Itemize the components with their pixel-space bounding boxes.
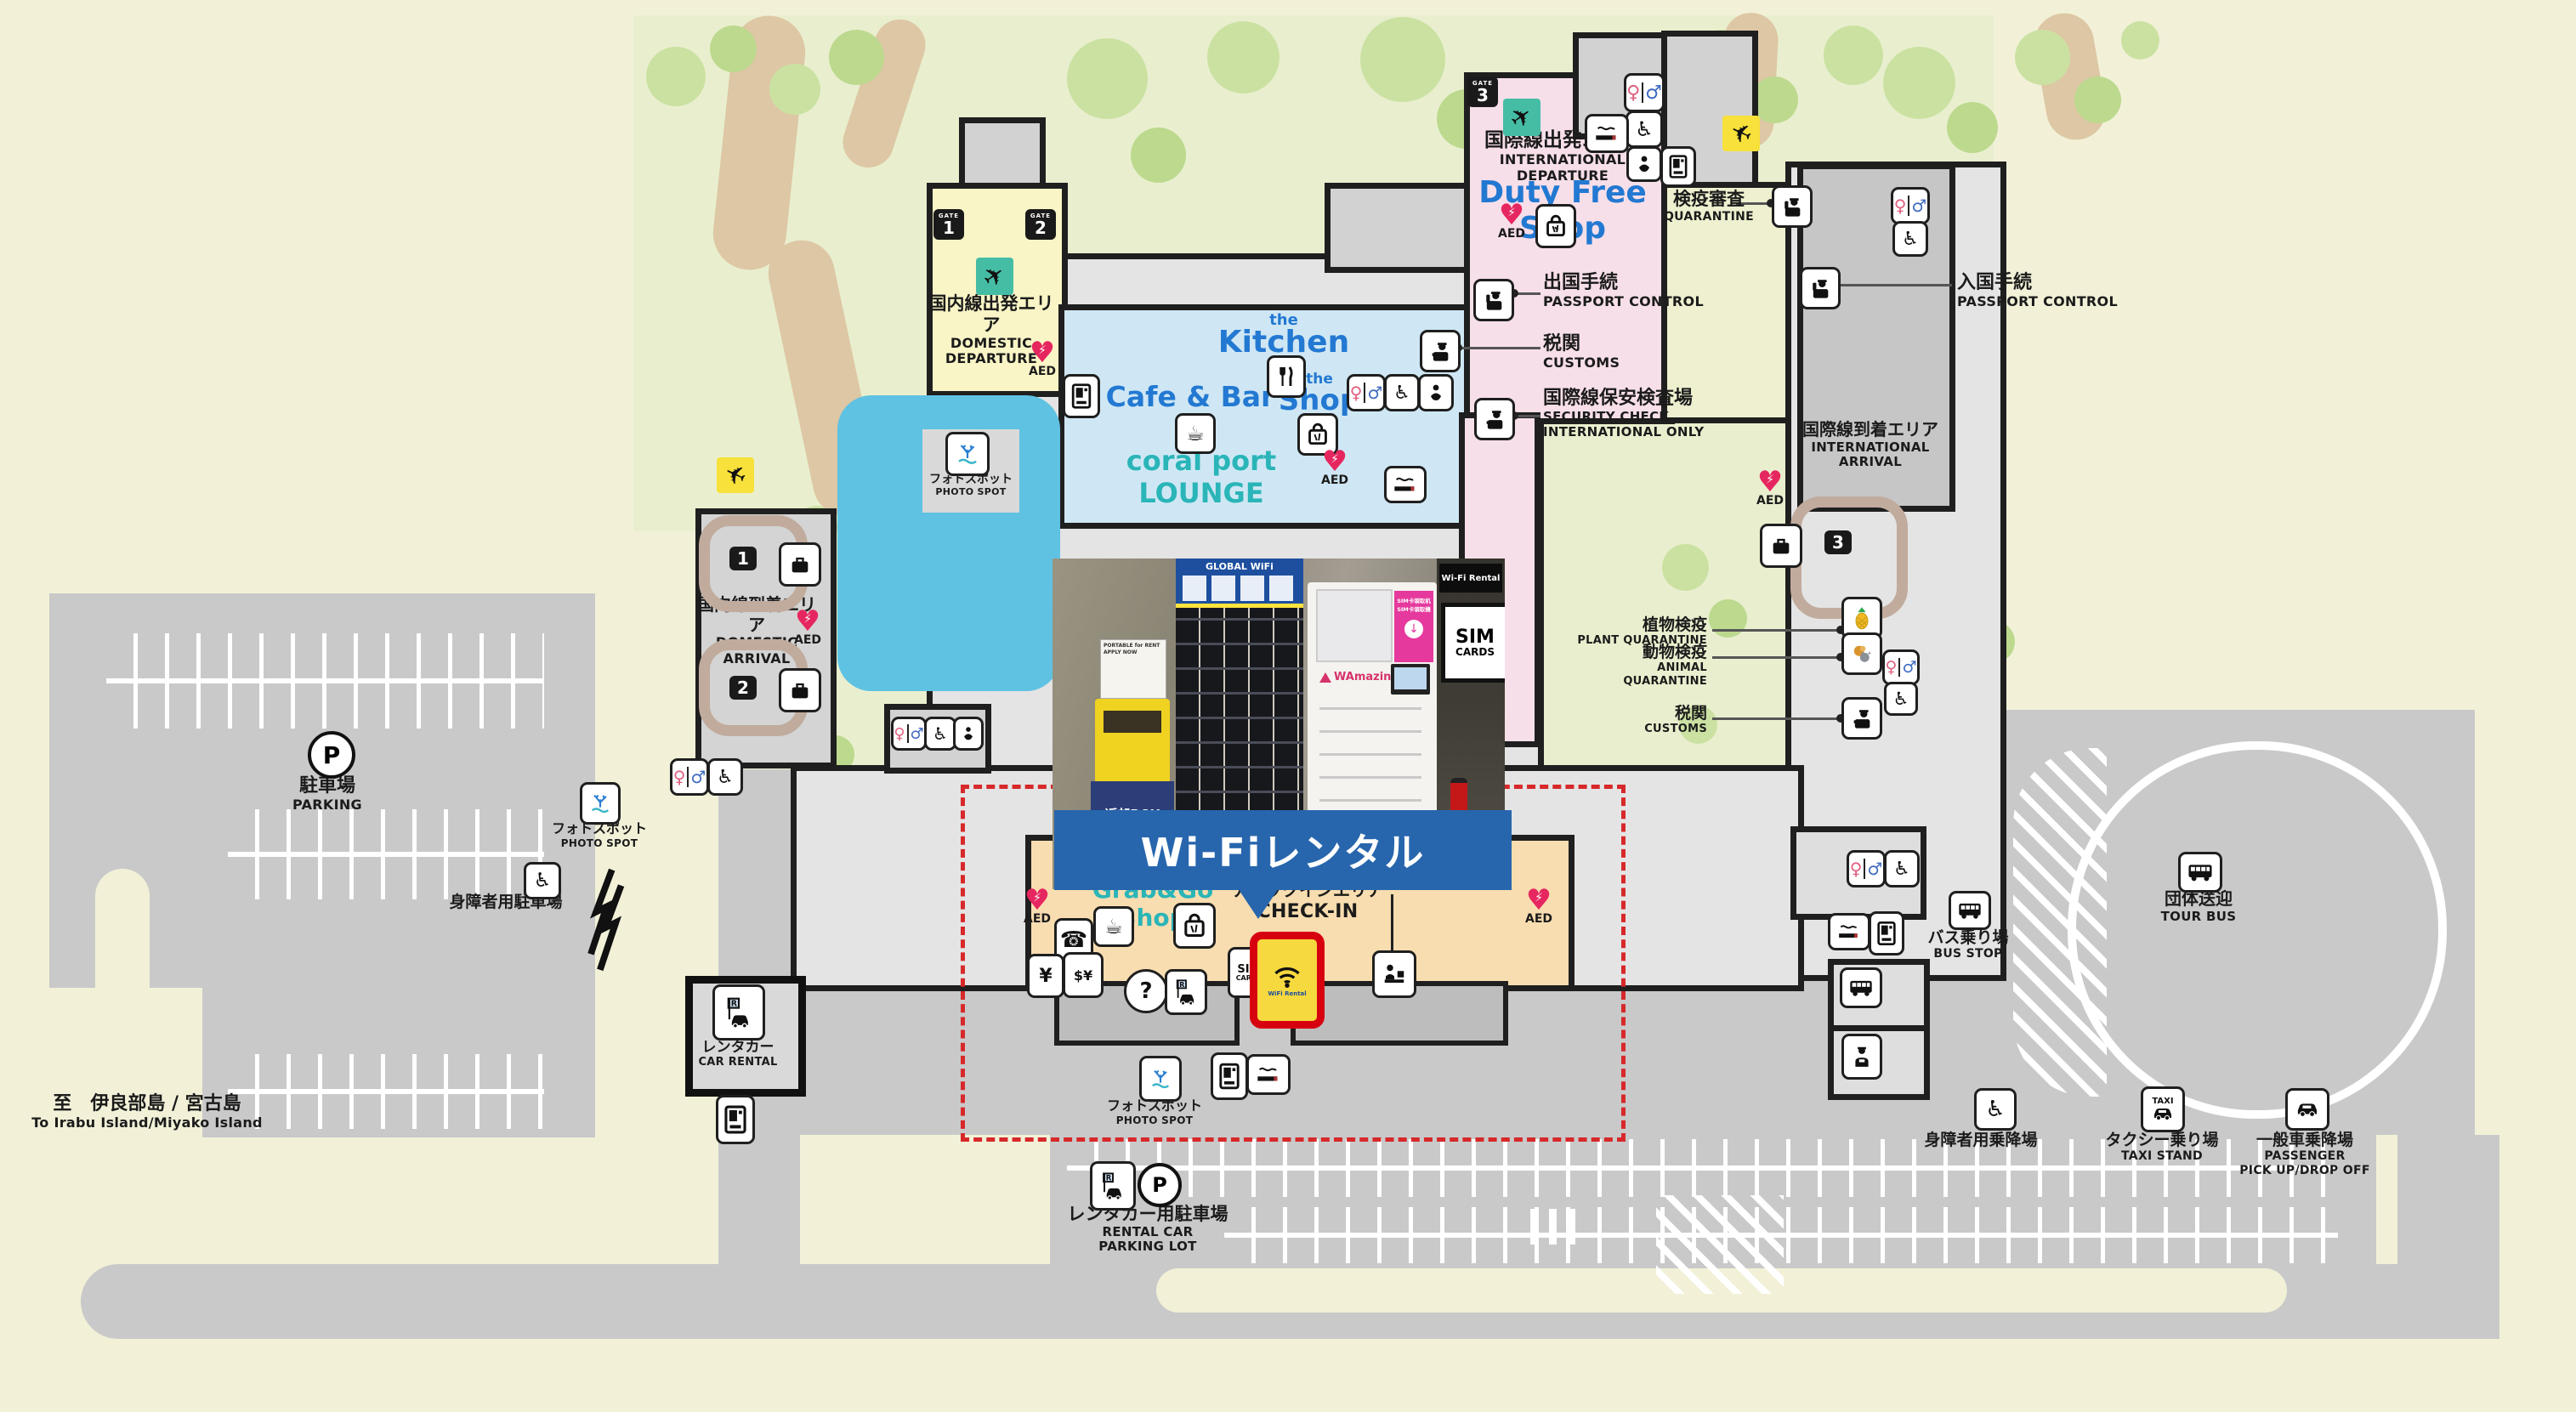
label-quarantine: 検疫審査 QUARANTINE	[1658, 189, 1760, 224]
label-international-arrival: 国際線到着エリア INTERNATIONAL ARRIVAL	[1796, 420, 1945, 470]
restroom-icon: ♀♂	[1891, 187, 1930, 224]
restroom-icon: ♀♂	[891, 717, 927, 751]
smoking-icon	[1828, 913, 1870, 950]
security-check-icon	[1474, 398, 1515, 440]
baby-room-icon	[953, 717, 984, 751]
tour-bus-icon	[2178, 852, 2222, 893]
airport-floor-map: GATE1 GATE2 GATE3 1 2 3 ✈ ✈ ✈ ✈ 国内線出発エリア…	[0, 0, 2576, 1412]
photo-locker-sign: GLOBAL WiFi	[1176, 559, 1303, 608]
parking-stalls	[106, 633, 544, 729]
tree	[2015, 30, 2070, 85]
baby-room-icon	[1418, 374, 1454, 411]
chevron-hatch	[1656, 1195, 1784, 1294]
svg-text:R: R	[731, 1000, 738, 1009]
label-tour-bus: 団体送迎 TOUR BUS	[2131, 889, 2267, 924]
label-photo-spot-pool: フォトスポット PHOTO SPOT	[920, 473, 1022, 497]
east-road-arm	[2397, 1135, 2499, 1339]
wheelchair-icon: ♿	[1884, 850, 1920, 887]
photo-spot-coral-icon	[945, 432, 990, 476]
tree	[829, 30, 884, 85]
wheelchair-icon: ♿	[1384, 374, 1420, 411]
label-photo-spot-west: フォトスポット PHOTO SPOT	[536, 821, 663, 849]
label-passenger-pickup: 一般車乗降場 PASSENGER PICK UP/DROP OFF	[2207, 1131, 2403, 1177]
departure-plane-icon: ✈	[1503, 99, 1540, 136]
photo-portable-sign: PORTABLE for RENT APPLY NOW	[1100, 639, 1166, 699]
baggage-claim-icon	[779, 542, 821, 587]
aed-marker: ♥⚡AED	[1745, 469, 1796, 508]
restroom-icon: ♀♂	[1624, 73, 1665, 112]
wheelchair-icon: ♿	[1626, 111, 1663, 148]
label-car-rental: レンタカー CAR RENTAL	[685, 1039, 791, 1069]
label-disabled-parking: 身障者用駐車場	[425, 893, 587, 911]
gate-1: GATE1	[933, 209, 964, 240]
police-officer-icon	[1841, 1034, 1882, 1080]
aed-marker: ♥⚡AED	[1486, 202, 1537, 241]
svg-text:R: R	[1106, 1174, 1112, 1182]
photo-sim-cards-sign: SIMCARDS	[1441, 603, 1505, 683]
tree	[646, 47, 706, 106]
label-passport-control-arrival: 入国手続 PASSPORT CONTROL	[1957, 272, 2144, 310]
label-passport-control-departure: 出国手続 PASSPORT CONTROL	[1543, 272, 1730, 310]
wheelchair-icon: ♿	[1892, 221, 1928, 257]
restroom-icon: ♀♂	[1882, 649, 1920, 685]
tree	[2121, 21, 2159, 60]
smoking-icon	[1384, 466, 1427, 503]
wheelchair-icon: ♿	[707, 758, 743, 796]
bus-loop-ring	[2068, 741, 2447, 1119]
restroom-icon: ♀♂	[1347, 374, 1386, 411]
arrival-plane-icon: ✈	[717, 457, 754, 493]
label-security-check: 国際線保安検査場 SECURITY CHECK INTERNATIONAL ON…	[1543, 388, 1747, 439]
label-animal-quarantine: 動物検疫 ANIMAL QUARANTINE	[1569, 643, 1707, 688]
leader-line	[1459, 347, 1540, 349]
aed-marker: ♥⚡AED	[1309, 449, 1360, 487]
departure-plane-icon: ✈	[976, 258, 1013, 295]
restroom-icon: ♀♂	[670, 758, 709, 796]
baby-room-icon	[1626, 146, 1662, 182]
tree	[1067, 38, 1148, 119]
vending-machine-icon	[1660, 146, 1696, 187]
gate-2: GATE2	[1025, 209, 1056, 240]
leader-line	[1835, 284, 1952, 286]
smoking-icon	[1585, 114, 1629, 153]
rental-car-icon: R	[1090, 1161, 1136, 1211]
photo-return-box	[1095, 699, 1170, 784]
wheelchair-icon: ♿	[1884, 682, 1918, 716]
parking-stalls	[228, 809, 544, 899]
bus-stop-icon	[1949, 891, 1991, 930]
leader-line	[1712, 656, 1840, 659]
vending-machine-icon	[716, 1095, 755, 1144]
leader-line	[1712, 629, 1840, 632]
banner-pointer	[1238, 888, 1279, 919]
leader-line	[1712, 717, 1840, 720]
aed-marker: ♥⚡AED	[782, 609, 833, 647]
tree	[769, 64, 820, 115]
tree	[2074, 77, 2121, 123]
rental-car-icon: R	[712, 984, 765, 1041]
tree	[1662, 544, 1709, 591]
tree	[710, 26, 757, 72]
passport-control-icon	[1800, 267, 1841, 309]
label-parking: 駐車場 PARKING	[264, 775, 391, 814]
photo-sim-pink-sign: SIM卡領取机 SIM卡領取機 ↓	[1394, 591, 1433, 662]
restaurant-icon	[1267, 355, 1306, 398]
label-disabled-pickup: 身障者用乗降場	[1898, 1131, 2064, 1149]
bus-icon	[1840, 967, 1882, 1008]
tree	[1131, 128, 1186, 183]
tree	[1947, 102, 1998, 153]
passenger-car-icon	[2285, 1088, 2329, 1131]
label-lounge: coral port LOUNGE	[1070, 445, 1333, 510]
cafe-icon: ☕	[1175, 413, 1216, 454]
label-cafe-bar: Cafe & Bar	[1105, 381, 1275, 414]
leader-line	[1515, 415, 1540, 417]
crosswalk	[1530, 1209, 1580, 1245]
parking-island	[95, 869, 150, 1051]
shopping-bag-icon	[1535, 204, 1576, 248]
wheelchair-icon: ♿	[1974, 1088, 2017, 1131]
tree	[1207, 21, 1279, 94]
parking-icon: P	[1138, 1163, 1182, 1207]
baggage-claim-icon	[1760, 524, 1802, 568]
label-rental-parking: レンタカー用駐車場 RENTAL CAR PARKING LOT	[1037, 1204, 1258, 1255]
photo-wifi-rental-sign: Wi-Fi Rental	[1439, 564, 1502, 593]
label-customs-arrival: 税関 CUSTOMS	[1569, 704, 1707, 736]
label-the-kitchen: the Kitchen	[1207, 311, 1360, 357]
restroom-icon: ♀♂	[1847, 850, 1886, 887]
tree	[1360, 17, 1445, 102]
aed-marker: ♥⚡AED	[1017, 340, 1068, 378]
vending-machine-icon	[1869, 911, 1904, 956]
taxi-icon: TAXI	[2141, 1086, 2185, 1132]
label-bus-stop: バス乗り場 BUS STOP	[1904, 928, 2032, 961]
passport-control-icon	[1473, 279, 1514, 321]
label-to-islands: 至 伊良部島 / 宮古島 To Irabu Island/Miyako Isla…	[15, 1093, 279, 1131]
photo-spot-coral-icon	[580, 782, 621, 825]
customs-officer-icon	[1841, 697, 1882, 740]
gate-3: GATE3	[1467, 77, 1498, 107]
wifi-rental-banner: Wi-Fiレンタル	[1054, 810, 1512, 890]
parking-icon: P	[308, 731, 355, 779]
vending-machine-icon	[1063, 374, 1100, 418]
wheelchair-icon: ♿	[524, 862, 561, 899]
tree	[1824, 26, 1883, 85]
belt-number-1: 1	[729, 547, 757, 570]
wheelchair-icon: ♿	[924, 717, 956, 751]
wifi-rental-highlight-icon: WiFi Rental	[1250, 932, 1325, 1029]
belt-number-2: 2	[729, 676, 757, 700]
no-parking-hatch	[2013, 748, 2107, 1097]
label-customs-departure: 税関 CUSTOMS	[1543, 333, 1679, 371]
customs-officer-icon	[1420, 330, 1461, 372]
baggage-claim-icon	[779, 668, 821, 712]
quarantine-officer-icon	[1772, 185, 1813, 228]
leader-line	[1515, 292, 1540, 295]
map-break-icon	[583, 867, 627, 976]
tree	[1883, 47, 1955, 119]
kitchen-back-room	[1325, 183, 1483, 273]
arrival-plane-icon: ✈	[1722, 116, 1760, 151]
animal-quarantine-icon	[1841, 632, 1882, 675]
belt-number-3: 3	[1824, 530, 1852, 554]
tree	[1709, 599, 1747, 638]
